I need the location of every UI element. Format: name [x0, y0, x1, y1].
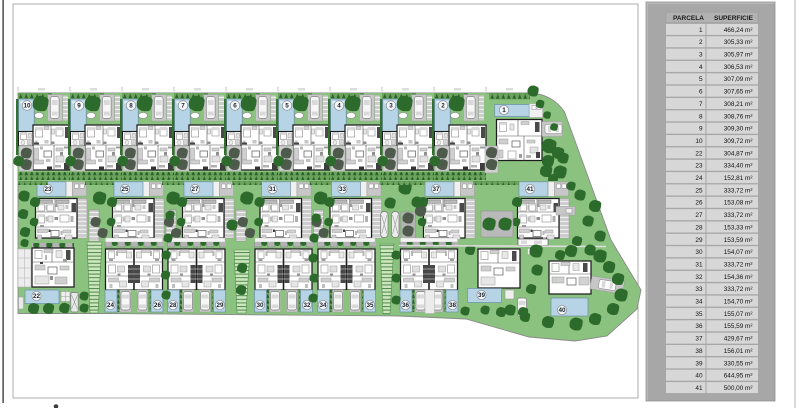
svg-text:24: 24	[695, 175, 703, 182]
svg-text:10: 10	[695, 138, 703, 145]
svg-text:35: 35	[366, 302, 374, 309]
svg-text:429,67 m²: 429,67 m²	[724, 336, 753, 343]
svg-text:27: 27	[695, 212, 703, 219]
svg-text:22: 22	[695, 150, 703, 157]
svg-text:330,55 m²: 330,55 m²	[724, 360, 753, 367]
svg-text:28: 28	[695, 224, 703, 231]
svg-text:27: 27	[191, 186, 199, 193]
svg-text:23: 23	[44, 186, 52, 193]
svg-text:23: 23	[695, 163, 703, 170]
svg-text:500,00 m²: 500,00 m²	[724, 385, 753, 392]
svg-text:30: 30	[695, 249, 703, 256]
svg-text:155,07 m²: 155,07 m²	[724, 311, 753, 318]
svg-text:304,87 m²: 304,87 m²	[724, 150, 753, 157]
svg-text:25: 25	[695, 187, 703, 194]
svg-text:154,70 m²: 154,70 m²	[724, 299, 753, 306]
svg-text:6: 6	[699, 89, 703, 96]
svg-text:38: 38	[695, 348, 703, 355]
svg-text:32: 32	[695, 274, 703, 281]
svg-text:SUPERFICIE: SUPERFICIE	[714, 15, 754, 22]
svg-text:309,72 m²: 309,72 m²	[724, 138, 753, 145]
svg-text:41: 41	[695, 385, 703, 392]
svg-text:308,21 m²: 308,21 m²	[724, 101, 753, 108]
svg-text:40: 40	[558, 307, 566, 314]
svg-text:33: 33	[695, 286, 703, 293]
svg-text:26: 26	[154, 302, 162, 309]
svg-text:333,72 m²: 333,72 m²	[724, 212, 753, 219]
svg-text:1: 1	[502, 107, 506, 114]
svg-text:9: 9	[77, 103, 81, 110]
svg-text:305,97 m²: 305,97 m²	[724, 52, 753, 59]
svg-text:334,40 m²: 334,40 m²	[724, 163, 753, 170]
svg-text:153,08 m²: 153,08 m²	[724, 200, 753, 207]
svg-text:155,59 m²: 155,59 m²	[724, 323, 753, 330]
svg-text:154,36 m²: 154,36 m²	[724, 274, 753, 281]
svg-text:38: 38	[449, 302, 457, 309]
svg-text:41: 41	[526, 186, 534, 193]
svg-text:4: 4	[699, 64, 703, 71]
svg-text:37: 37	[695, 336, 703, 343]
svg-text:2: 2	[441, 103, 445, 110]
svg-text:39: 39	[695, 360, 703, 367]
svg-text:29: 29	[695, 237, 703, 244]
svg-text:25: 25	[121, 186, 129, 193]
svg-text:3: 3	[699, 52, 703, 59]
svg-text:24: 24	[107, 302, 115, 309]
svg-text:35: 35	[695, 311, 703, 318]
svg-text:305,33 m²: 305,33 m²	[724, 39, 753, 46]
svg-text:29: 29	[216, 302, 224, 309]
svg-text:333,72 m²: 333,72 m²	[724, 261, 753, 268]
svg-text:7: 7	[699, 101, 703, 108]
svg-text:1: 1	[699, 27, 703, 34]
svg-text:31: 31	[269, 186, 277, 193]
svg-text:153,59 m²: 153,59 m²	[724, 237, 753, 244]
svg-text:PARCELA: PARCELA	[673, 15, 704, 22]
svg-text:22: 22	[33, 293, 41, 300]
svg-text:5: 5	[285, 103, 289, 110]
svg-text:333,72 m²: 333,72 m²	[724, 187, 753, 194]
svg-text:8: 8	[699, 113, 703, 120]
svg-text:9: 9	[699, 126, 703, 133]
svg-text:32: 32	[303, 302, 311, 309]
svg-text:307,65 m²: 307,65 m²	[724, 89, 753, 96]
svg-text:466,24 m²: 466,24 m²	[724, 27, 753, 34]
svg-text:31: 31	[695, 261, 703, 268]
svg-text:34: 34	[319, 302, 327, 309]
svg-text:8: 8	[129, 103, 133, 110]
svg-text:309,30 m²: 309,30 m²	[724, 126, 753, 133]
svg-text:333,72 m²: 333,72 m²	[724, 286, 753, 293]
svg-text:644,95 m²: 644,95 m²	[724, 373, 753, 380]
svg-text:4: 4	[337, 103, 341, 110]
svg-text:26: 26	[695, 200, 703, 207]
svg-text:36: 36	[402, 302, 410, 309]
svg-text:36: 36	[695, 323, 703, 330]
svg-text:3: 3	[389, 103, 393, 110]
svg-text:30: 30	[256, 302, 264, 309]
svg-text:39: 39	[478, 292, 486, 299]
svg-text:7: 7	[181, 103, 185, 110]
svg-text:28: 28	[169, 302, 177, 309]
svg-text:40: 40	[695, 373, 703, 380]
svg-text:33: 33	[339, 186, 347, 193]
svg-text:152,81 m²: 152,81 m²	[724, 175, 753, 182]
svg-text:34: 34	[695, 299, 703, 306]
svg-text:308,76 m²: 308,76 m²	[724, 113, 753, 120]
svg-text:306,53 m²: 306,53 m²	[724, 64, 753, 71]
svg-text:154,07 m²: 154,07 m²	[724, 249, 753, 256]
svg-text:10: 10	[23, 103, 31, 110]
svg-text:156,01 m²: 156,01 m²	[724, 348, 753, 355]
svg-text:307,09 m²: 307,09 m²	[724, 76, 753, 83]
svg-text:37: 37	[432, 186, 440, 193]
svg-text:6: 6	[233, 103, 237, 110]
svg-text:5: 5	[699, 76, 703, 83]
svg-text:2: 2	[699, 39, 703, 46]
svg-text:153,33 m²: 153,33 m²	[724, 224, 753, 231]
